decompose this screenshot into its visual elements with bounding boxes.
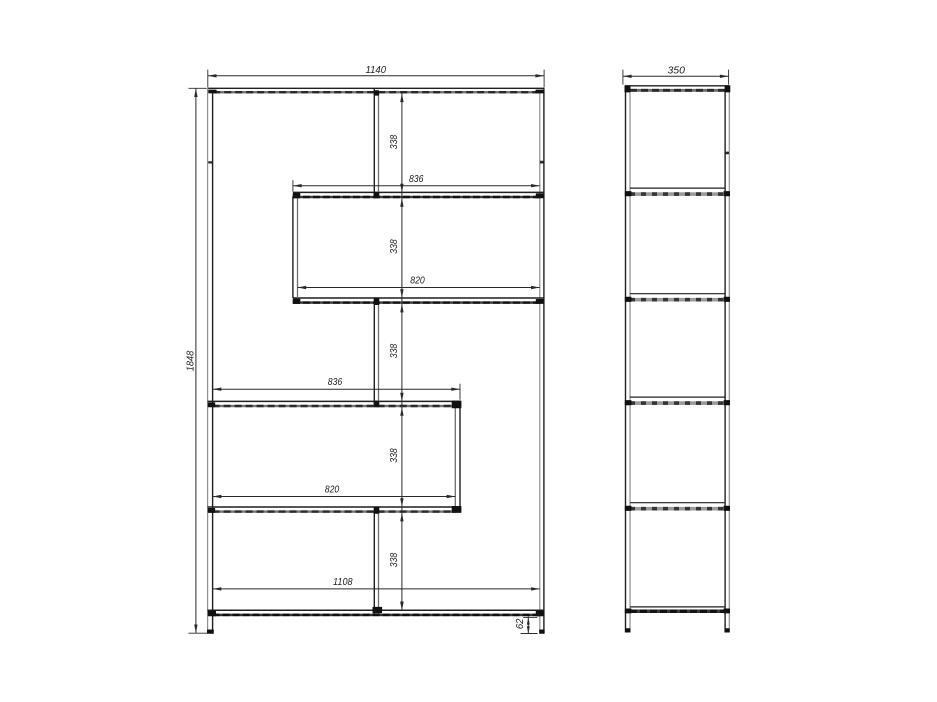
svg-text:62: 62 [514, 619, 526, 630]
svg-text:338: 338 [388, 344, 400, 359]
svg-text:338: 338 [388, 135, 400, 150]
svg-text:820: 820 [410, 275, 425, 287]
svg-text:836: 836 [328, 376, 343, 388]
svg-text:338: 338 [388, 448, 400, 463]
svg-text:820: 820 [325, 484, 340, 496]
svg-text:1108: 1108 [333, 576, 353, 588]
svg-text:350: 350 [667, 65, 685, 77]
svg-text:1848: 1848 [185, 351, 197, 372]
svg-text:836: 836 [409, 173, 424, 185]
svg-text:338: 338 [388, 239, 400, 254]
svg-text:1140: 1140 [366, 64, 387, 76]
svg-text:338: 338 [388, 553, 400, 568]
